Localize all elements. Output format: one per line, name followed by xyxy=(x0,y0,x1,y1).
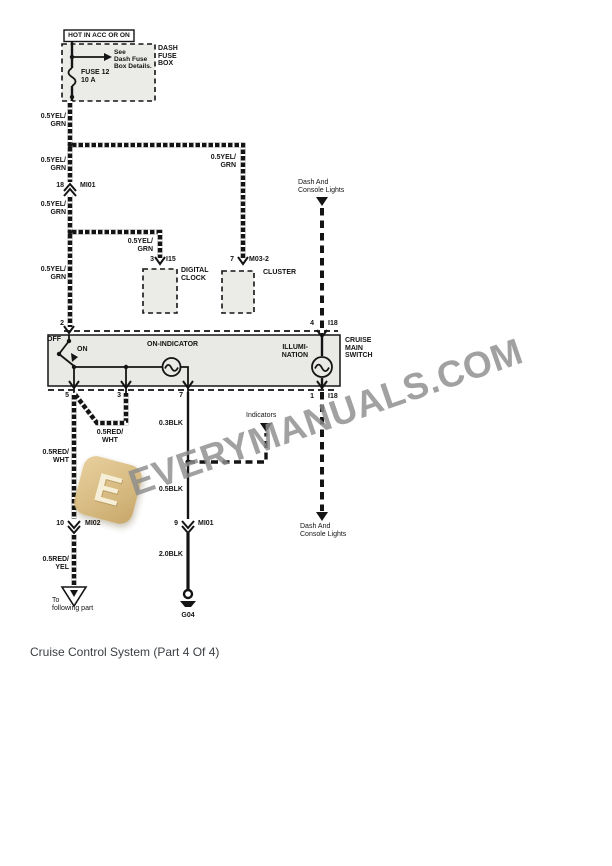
ground-ring-icon xyxy=(184,590,192,598)
pin2-arrow-icon xyxy=(64,326,74,333)
connector-10-pin: 10 xyxy=(56,520,64,528)
connector-18-name: MI01 xyxy=(80,182,96,190)
wire-label-redwht-jumper: 0.5RED/ WHT xyxy=(90,429,130,444)
cruise-main-switch-label: CRUISE MAIN SWITCH xyxy=(345,337,373,360)
digital-clock-box xyxy=(143,269,177,313)
dash-console-lights-bottom-label: Dash And Console Lights xyxy=(300,523,346,538)
wire-label-yelgrn-clock: 0.5YEL/ GRN xyxy=(128,238,153,253)
clock-connector-name: I15 xyxy=(166,256,176,264)
manual-page: HOT IN ACC OR ON DASH FUSE BOX See Dash … xyxy=(0,0,612,866)
on-indicator-label: ON-INDICATOR xyxy=(147,341,198,349)
illumination-label: ILLUMI- NATION xyxy=(282,344,308,359)
digital-clock-label: DIGITAL CLOCK xyxy=(181,267,208,282)
wire-label-20blk: 2.0BLK xyxy=(159,551,183,559)
wiring-diagram-lines xyxy=(0,0,612,660)
cluster-label: CLUSTER xyxy=(263,269,296,277)
wire-label-redyel: 0.5RED/ YEL xyxy=(43,556,69,571)
connector-i18-top: I18 xyxy=(328,320,338,328)
wire-label-redwht-main: 0.5RED/ WHT xyxy=(43,449,69,464)
fuse-label: FUSE 12 10 A xyxy=(81,69,109,84)
clock-pin: 3 xyxy=(150,256,154,264)
dash-fuse-box-label: DASH FUSE BOX xyxy=(158,45,178,68)
console-lights-top-arrow-icon xyxy=(316,197,328,206)
switch-pin-3: 3 xyxy=(117,392,121,400)
wire-label-03blk: 0.3BLK xyxy=(159,420,183,428)
console-lights-bottom-arrow-icon xyxy=(316,512,328,521)
switch-pin-5: 5 xyxy=(65,392,69,400)
see-details-note: See Dash Fuse Box Details. xyxy=(114,49,152,70)
ground-symbol-icon xyxy=(180,601,196,607)
connector-9-pin: 9 xyxy=(174,520,178,528)
connector-9-name: MI01 xyxy=(198,520,214,528)
switch-pin-2: 2 xyxy=(60,320,64,328)
cluster-connector-name: M03-2 xyxy=(249,256,269,264)
connector-10-name: MI02 xyxy=(85,520,101,528)
ground-g04-label: G04 xyxy=(176,612,200,620)
wire-label-yelgrn-2: 0.5YEL/ GRN xyxy=(41,157,66,172)
wire-label-yelgrn-3: 0.5YEL/ GRN xyxy=(41,201,66,216)
connector-18-pin: 18 xyxy=(56,182,64,190)
figure-caption: Cruise Control System (Part 4 Of 4) xyxy=(30,645,219,659)
clock-pin-arrow-icon xyxy=(155,257,165,264)
wire-label-yelgrn-cluster: 0.5YEL/ GRN xyxy=(211,154,236,169)
cluster-box xyxy=(222,271,254,313)
hot-in-acc-label: HOT IN ACC OR ON xyxy=(64,32,134,39)
to-following-part-label: To following part xyxy=(52,597,93,612)
switch-pin-7: 7 xyxy=(179,392,183,400)
wire-label-yelgrn-1: 0.5YEL/ GRN xyxy=(41,113,66,128)
switch-pin-4: 4 xyxy=(310,320,314,328)
cluster-pin: 7 xyxy=(230,256,234,264)
on-label: ON xyxy=(77,346,88,354)
cluster-pin-arrow-icon xyxy=(238,257,248,264)
wire-label-yelgrn-4: 0.5YEL/ GRN xyxy=(41,266,66,281)
watermark-logo-letter: E xyxy=(90,467,126,513)
off-label: OFF xyxy=(47,336,61,344)
dash-console-lights-top-label: Dash And Console Lights xyxy=(298,179,344,194)
